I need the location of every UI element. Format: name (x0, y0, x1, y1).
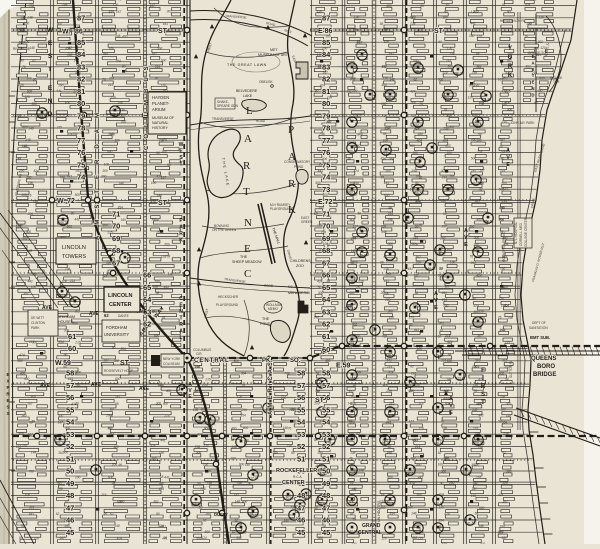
svg-text:57: 57 (322, 381, 330, 390)
svg-text:68: 68 (322, 246, 330, 255)
svg-text:T: T (243, 186, 250, 198)
svg-text:PLAYGROUND: PLAYGROUND (216, 303, 239, 307)
svg-text:73: 73 (322, 185, 330, 194)
svg-text:SO.: SO. (290, 358, 301, 364)
svg-text:63: 63 (322, 307, 330, 316)
svg-text:57: 57 (297, 381, 305, 390)
svg-text:HISTORY: HISTORY (152, 126, 168, 130)
svg-text:109-96: 109-96 (434, 441, 444, 445)
svg-text:ROOSEVELT HOSP: ROOSEVELT HOSP (104, 369, 133, 373)
svg-text:226-92: 226-92 (416, 163, 426, 167)
svg-text:906-93: 906-93 (386, 501, 396, 505)
svg-text:459-90: 459-90 (428, 149, 438, 153)
svg-text:75: 75 (322, 160, 330, 169)
svg-text:310-41: 310-41 (411, 309, 421, 313)
svg-text:E: E (244, 243, 251, 255)
svg-text:HENDERSON PL: HENDERSON PL (500, 19, 525, 23)
svg-text:49: 49 (66, 479, 74, 488)
svg-text:48: 48 (322, 491, 330, 500)
svg-text:N.Y. HOSPITAL: N.Y. HOSPITAL (514, 222, 518, 244)
svg-text:47: 47 (297, 503, 305, 512)
svg-text:COLISEUM: COLISEUM (163, 362, 180, 366)
svg-text:ROAD: ROAD (264, 284, 274, 288)
svg-text:49: 49 (322, 479, 330, 488)
svg-text:S: S (6, 405, 9, 410)
svg-text:LINCOLN: LINCOLN (108, 293, 132, 299)
svg-text:X: X (6, 379, 9, 384)
svg-text:CENTER: CENTER (109, 302, 132, 308)
svg-text:50: 50 (322, 467, 330, 476)
svg-text:A: A (288, 151, 296, 163)
svg-text:201-50: 201-50 (466, 521, 476, 525)
svg-text:MUSEUM OF ART: MUSEUM OF ART (258, 53, 289, 57)
svg-text:76: 76 (77, 148, 85, 157)
svg-text:ROAD: ROAD (256, 119, 266, 123)
svg-text:CIR.: CIR. (196, 352, 202, 356)
svg-text:644-33: 644-33 (426, 266, 436, 270)
svg-text:K: K (288, 204, 296, 216)
svg-text:85: 85 (77, 38, 85, 47)
svg-text:ROCKEFELLER: ROCKEFELLER (276, 468, 317, 474)
svg-text:DE WITT: DE WITT (31, 316, 44, 320)
svg-text:FORDHAM: FORDHAM (106, 325, 128, 330)
svg-text:66: 66 (322, 271, 330, 280)
svg-text:55: 55 (322, 405, 330, 414)
svg-text:80: 80 (322, 99, 330, 108)
svg-text:V: V (464, 235, 468, 241)
svg-text:E.59: E.59 (336, 362, 351, 369)
svg-text:82: 82 (322, 75, 330, 84)
svg-text:58: 58 (66, 369, 74, 378)
svg-text:TER: TER (553, 80, 560, 84)
svg-text:TOWERS: TOWERS (62, 254, 86, 260)
svg-text:MEMO: MEMO (268, 307, 278, 311)
svg-text:65: 65 (322, 283, 330, 292)
svg-text:S: S (48, 53, 53, 60)
svg-text:85: 85 (322, 38, 330, 47)
svg-text:875-16: 875-16 (404, 219, 414, 223)
svg-text:GREEN: GREEN (301, 220, 313, 224)
svg-text:640-50: 640-50 (348, 376, 358, 380)
svg-text:POND: POND (260, 322, 271, 326)
svg-text:MUSEUM OF: MUSEUM OF (152, 116, 175, 120)
svg-text:729-51: 729-51 (348, 471, 358, 475)
svg-text:556-20: 556-20 (196, 419, 206, 423)
svg-text:K: K (179, 238, 183, 244)
svg-text:915-49: 915-49 (382, 151, 392, 155)
svg-text:THE: THE (262, 317, 270, 321)
svg-text:228-48: 228-48 (192, 501, 202, 505)
svg-text:51: 51 (297, 454, 305, 463)
svg-text:N: N (179, 309, 183, 315)
svg-text:46: 46 (297, 516, 305, 525)
svg-text:CLINTON: CLINTON (31, 321, 46, 325)
svg-text:76: 76 (322, 148, 330, 157)
svg-text:ST: ST (158, 200, 168, 207)
svg-text:D: D (48, 111, 53, 118)
svg-text:BELVEDERE: BELVEDERE (236, 89, 258, 93)
svg-text:R: R (179, 231, 183, 237)
svg-text:56: 56 (66, 393, 74, 402)
svg-text:AVE: AVE (89, 311, 100, 317)
svg-text:55: 55 (66, 405, 74, 414)
svg-text:64: 64 (322, 295, 331, 304)
svg-text:58: 58 (297, 369, 305, 378)
svg-text:PARK: PARK (31, 326, 40, 330)
svg-text:74: 74 (322, 173, 331, 182)
svg-text:407-21: 407-21 (414, 123, 424, 127)
svg-text:47: 47 (66, 503, 74, 512)
svg-text:986-31: 986-31 (366, 96, 376, 100)
svg-text:48: 48 (297, 491, 305, 500)
svg-text:ROCKEFELLER INST: ROCKEFELLER INST (502, 230, 506, 262)
svg-text:58: 58 (322, 369, 330, 378)
svg-text:O: O (508, 55, 513, 61)
svg-text:45: 45 (66, 528, 74, 537)
svg-text:ST: ST (315, 397, 325, 404)
svg-text:MENAGERIE: MENAGERIE (288, 291, 310, 295)
svg-text:A: A (449, 396, 453, 402)
svg-text:83: 83 (77, 62, 85, 71)
svg-text:533-81: 533-81 (456, 376, 466, 380)
svg-text:A: A (179, 225, 183, 231)
svg-text:45: 45 (297, 528, 305, 537)
svg-text:87: 87 (322, 13, 330, 22)
svg-text:W.: W. (62, 29, 70, 36)
svg-text:81: 81 (77, 87, 85, 96)
svg-text:AMERICAS: AMERICAS (268, 359, 274, 415)
svg-text:265-78: 265-78 (386, 96, 396, 100)
svg-text:S: S (6, 411, 9, 416)
svg-text:OBELISK: OBELISK (259, 80, 274, 84)
svg-text:886-21: 886-21 (381, 441, 391, 445)
svg-text:SPEARE GDN: SPEARE GDN (217, 104, 239, 108)
svg-text:193-24: 193-24 (406, 383, 416, 387)
svg-text:84: 84 (77, 50, 86, 59)
svg-text:51: 51 (66, 454, 74, 463)
svg-text:80: 80 (77, 99, 85, 108)
svg-text:70: 70 (322, 222, 330, 231)
svg-text:V: V (449, 403, 453, 409)
svg-text:C: C (179, 296, 183, 302)
svg-text:119-25: 119-25 (348, 279, 358, 283)
svg-text:NEW YORK: NEW YORK (163, 357, 181, 361)
svg-text:881-81: 881-81 (206, 421, 216, 425)
svg-text:R: R (179, 322, 183, 328)
svg-text:S: S (532, 67, 535, 72)
svg-text:E: E (532, 80, 535, 85)
svg-text:N: N (48, 98, 53, 105)
svg-text:511-85: 511-85 (482, 97, 492, 101)
svg-text:46: 46 (66, 516, 74, 525)
svg-text:444: 444 (443, 397, 449, 401)
svg-text:808-27: 808-27 (474, 441, 484, 445)
svg-text:53: 53 (322, 430, 330, 439)
svg-text:A: A (464, 228, 468, 234)
svg-text:252-51: 252-51 (38, 114, 48, 118)
svg-text:50: 50 (66, 467, 74, 476)
svg-text:CENTRAL: CENTRAL (358, 530, 382, 536)
svg-text:R: R (508, 64, 513, 70)
svg-text:GRAND: GRAND (362, 523, 381, 529)
svg-text:R: R (288, 178, 296, 190)
svg-text:LAKE: LAKE (243, 94, 253, 98)
svg-text:BMT SUB.: BMT SUB. (530, 335, 550, 340)
svg-text:A: A (179, 329, 183, 335)
svg-text:AVE: AVE (91, 382, 102, 388)
svg-text:L: L (179, 335, 182, 341)
svg-text:LINCOLN: LINCOLN (62, 245, 86, 251)
svg-text:N: N (531, 86, 534, 91)
svg-text:669-99: 669-99 (386, 413, 396, 417)
svg-text:48: 48 (66, 491, 74, 500)
svg-text:77: 77 (77, 136, 85, 145)
svg-text:E.72: E.72 (318, 199, 333, 206)
svg-text:53: 53 (66, 430, 74, 439)
svg-text:61: 61 (68, 332, 76, 341)
svg-text:739-95: 739-95 (111, 112, 121, 116)
svg-text:POND: POND (294, 165, 304, 169)
svg-text:R: R (243, 160, 251, 172)
svg-text:715-55: 715-55 (249, 513, 259, 517)
svg-text:77: 77 (322, 136, 330, 145)
svg-text:52: 52 (66, 442, 74, 451)
svg-text:87: 87 (77, 13, 85, 22)
svg-text:ZOO: ZOO (296, 264, 304, 268)
svg-text:W.59: W.59 (55, 360, 71, 367)
svg-text:CORNELL MED: CORNELL MED (519, 222, 523, 246)
svg-text:NO. 2: NO. 2 (288, 117, 297, 121)
svg-text:NATURAL: NATURAL (152, 121, 169, 125)
svg-text:A: A (506, 148, 510, 154)
svg-text:54: 54 (66, 418, 75, 427)
svg-text:SUTTON PL: SUTTON PL (509, 360, 513, 378)
svg-text:778-51: 778-51 (386, 353, 396, 357)
svg-text:768-31: 768-31 (414, 69, 424, 73)
svg-text:ST: ST (158, 28, 168, 35)
svg-text:960-75: 960-75 (474, 123, 484, 127)
svg-text:CENTER: CENTER (282, 480, 305, 486)
svg-text:DEPT OF: DEPT OF (532, 321, 546, 325)
svg-text:901-28: 901-28 (56, 441, 66, 445)
svg-text:67: 67 (112, 258, 120, 267)
svg-text:71: 71 (112, 209, 120, 218)
svg-text:217-44: 217-44 (249, 476, 259, 480)
svg-text:57: 57 (66, 381, 74, 390)
svg-text:ON THE GREEN: ON THE GREEN (212, 228, 237, 232)
svg-text:T: T (481, 400, 485, 406)
svg-text:F: F (481, 368, 485, 374)
svg-text:L: L (246, 105, 253, 117)
svg-text:56: 56 (297, 393, 305, 402)
svg-text:PK.: PK. (262, 358, 272, 364)
svg-text:A: A (434, 291, 438, 297)
svg-text:225-27: 225-27 (358, 253, 368, 257)
svg-text:82: 82 (77, 75, 85, 84)
svg-text:46: 46 (322, 516, 330, 525)
svg-text:62: 62 (143, 320, 151, 329)
svg-text:53: 53 (297, 430, 305, 439)
svg-text:COLLEGE CENTER: COLLEGE CENTER (524, 217, 528, 247)
svg-text:65: 65 (143, 283, 151, 292)
svg-text:HECKSCHER: HECKSCHER (218, 295, 239, 299)
svg-text:47: 47 (322, 503, 330, 512)
svg-text:78: 78 (77, 124, 85, 133)
svg-text:HAYDEN: HAYDEN (152, 95, 169, 100)
svg-text:V: V (434, 298, 438, 304)
svg-text:P: P (6, 385, 9, 390)
svg-text:54: 54 (322, 418, 331, 427)
svg-text:79: 79 (77, 111, 85, 120)
svg-text:68: 68 (112, 246, 120, 255)
svg-text:W: W (179, 142, 184, 148)
svg-text:186-78: 186-78 (454, 71, 464, 75)
svg-text:UN HDQTRS: UN HDQTRS (377, 500, 381, 522)
svg-text:517-96: 517-96 (406, 471, 416, 475)
svg-text:RIVERSIDE: RIVERSIDE (13, 47, 30, 51)
svg-text:A: A (531, 60, 534, 65)
svg-text:959-99: 959-99 (237, 529, 247, 533)
svg-text:PLANET-: PLANET- (152, 101, 170, 106)
svg-text:593-44: 593-44 (444, 96, 454, 100)
svg-text:D: D (531, 92, 534, 97)
svg-text:74: 74 (77, 173, 86, 182)
svg-text:78: 78 (322, 124, 330, 133)
svg-text:SQ: SQ (222, 518, 227, 522)
svg-text:81: 81 (322, 87, 330, 96)
svg-text:BORO: BORO (537, 364, 555, 370)
svg-text:E: E (464, 242, 468, 248)
svg-text:870-67: 870-67 (348, 306, 358, 310)
svg-text:ARIUM: ARIUM (152, 107, 166, 112)
svg-text:QUEENS: QUEENS (531, 356, 556, 362)
svg-text:101-69: 101-69 (178, 391, 188, 395)
svg-text:947-25: 947-25 (348, 529, 358, 533)
svg-text:66: 66 (143, 271, 151, 280)
svg-text:T: T (179, 162, 182, 168)
svg-text:K: K (508, 73, 513, 79)
svg-text:868-70: 868-70 (436, 251, 446, 255)
svg-text:DUFFY: DUFFY (214, 512, 228, 517)
svg-text:T: T (179, 316, 182, 322)
svg-text:E: E (6, 372, 9, 377)
svg-text:AVE: AVE (139, 386, 150, 392)
svg-text:CENTRAL: CENTRAL (194, 358, 230, 364)
svg-text:R.C.A.: R.C.A. (293, 475, 303, 479)
svg-text:SANITATION: SANITATION (529, 326, 548, 330)
svg-text:86: 86 (75, 29, 83, 36)
svg-text:E: E (449, 410, 453, 416)
svg-text:W. 72: W. 72 (57, 198, 75, 205)
svg-text:62: 62 (104, 313, 109, 318)
svg-text:60: 60 (68, 344, 76, 353)
svg-text:S: S (481, 392, 485, 398)
svg-text:575-80: 575-80 (284, 496, 294, 500)
svg-text:62: 62 (322, 320, 330, 329)
svg-text:71: 71 (322, 209, 330, 218)
svg-text:496-39: 496-39 (59, 221, 69, 225)
svg-text:570-86: 570-86 (434, 353, 444, 357)
svg-text:84: 84 (322, 50, 331, 59)
svg-text:T: T (532, 73, 535, 78)
svg-text:MET: MET (270, 48, 278, 52)
svg-text:60: 60 (322, 345, 330, 354)
svg-text:75: 75 (77, 160, 85, 169)
svg-text:W: W (47, 27, 54, 34)
svg-text:297-89: 297-89 (348, 191, 358, 195)
svg-text:E: E (434, 305, 438, 311)
svg-text:83: 83 (322, 62, 330, 71)
svg-text:P: P (288, 124, 294, 136)
svg-text:AVE: AVE (40, 383, 51, 389)
svg-text:Y: Y (508, 46, 512, 52)
svg-text:HOUSES: HOUSES (58, 320, 74, 324)
svg-text:DANTE: DANTE (118, 314, 129, 318)
svg-text:69: 69 (112, 234, 120, 243)
svg-text:THE: THE (240, 255, 248, 259)
svg-text:284-63: 284-63 (484, 219, 494, 223)
svg-text:CHILDRENS: CHILDRENS (290, 259, 311, 263)
svg-text:THE GREAT LAWN: THE GREAT LAWN (227, 63, 267, 67)
svg-text:651-13: 651-13 (414, 529, 424, 533)
svg-text:A: A (244, 133, 252, 145)
svg-text:C: C (244, 268, 251, 280)
svg-text:E 86: E 86 (318, 28, 333, 35)
svg-text:79: 79 (322, 111, 330, 120)
svg-text:ST: ST (434, 28, 444, 35)
svg-text:N: N (244, 217, 252, 229)
svg-text:51: 51 (322, 454, 330, 463)
svg-text:T: T (48, 66, 52, 73)
svg-text:SHEEP MEADOW: SHEEP MEADOW (232, 260, 262, 264)
svg-text:830-17: 830-17 (434, 501, 444, 505)
svg-text:52: 52 (322, 442, 330, 451)
svg-text:BRIDGE: BRIDGE (533, 372, 556, 378)
svg-text:982-12: 982-12 (472, 181, 482, 185)
svg-text:146-95: 146-95 (58, 293, 68, 297)
svg-text:69: 69 (322, 234, 330, 243)
svg-text:E: E (48, 85, 53, 92)
svg-text:E: E (48, 40, 53, 47)
svg-text:TRANSVERSE: TRANSVERSE (212, 117, 234, 121)
svg-text:JOHN JAY PARK: JOHN JAY PARK (510, 121, 535, 125)
svg-text:67: 67 (322, 258, 330, 267)
svg-text:UNIVERSITY: UNIVERSITY (104, 332, 129, 337)
svg-text:GRACIE SQ: GRACIE SQ (528, 51, 546, 55)
svg-text:616-50: 616-50 (414, 191, 424, 195)
svg-text:NO. 1: NO. 1 (288, 285, 297, 289)
svg-text:61: 61 (322, 332, 330, 341)
svg-text:64: 64 (143, 295, 152, 304)
svg-text:R: R (481, 384, 486, 390)
svg-text:54: 54 (297, 418, 306, 427)
svg-text:45: 45 (322, 528, 330, 537)
svg-text:392-28: 392-28 (348, 413, 358, 417)
svg-text:52: 52 (297, 442, 305, 451)
svg-text:959-97: 959-97 (348, 149, 358, 153)
svg-text:70: 70 (112, 222, 120, 231)
svg-text:AMSTERDAM: AMSTERDAM (95, 102, 101, 240)
svg-text:55: 55 (297, 405, 305, 414)
svg-text:102-87: 102-87 (462, 471, 472, 475)
